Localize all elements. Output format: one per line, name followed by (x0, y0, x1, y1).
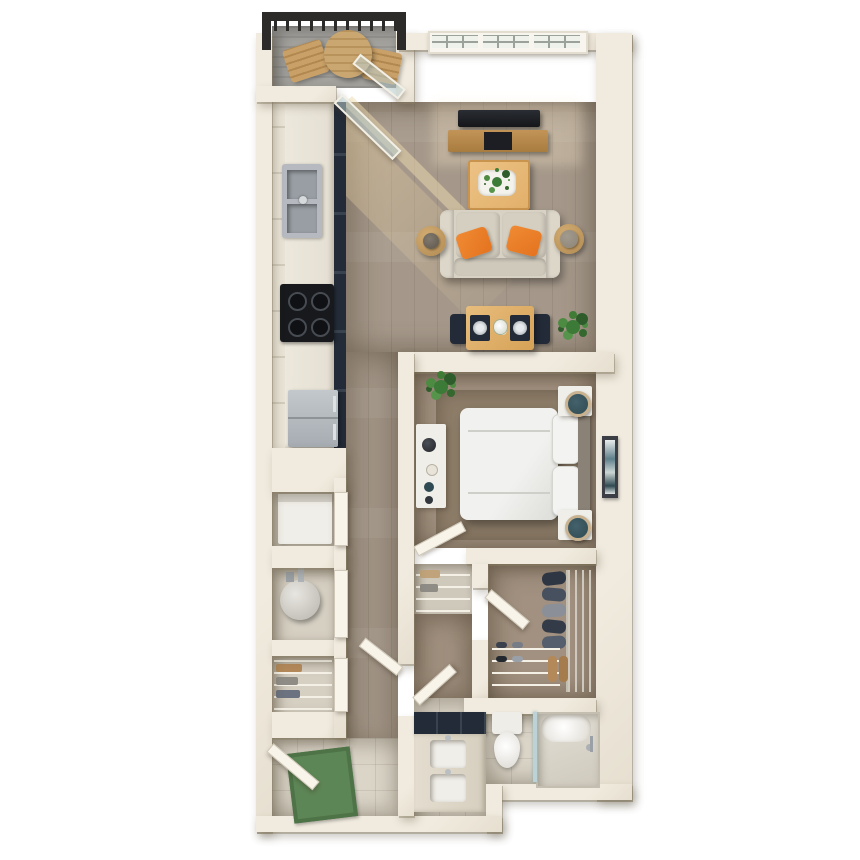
plate (473, 321, 487, 335)
plate (513, 321, 527, 335)
utility-closet-door (334, 570, 348, 638)
nightstand-south-lamp (565, 515, 591, 541)
water-heater-pipe (298, 568, 304, 582)
wall-corridor-right-upper (472, 564, 488, 588)
dining-chair-right (532, 314, 550, 344)
refrigerator-handle (333, 396, 336, 412)
hanging-clothes (541, 619, 566, 634)
coat-closet-item (276, 664, 302, 672)
vanity-faucet (445, 735, 451, 741)
hanging-clothes (541, 603, 566, 618)
folded-linens (420, 570, 440, 578)
bed-pillow (552, 414, 580, 464)
refrigerator-handle (333, 424, 336, 440)
floor-plan (0, 0, 860, 860)
bed-pillow (552, 466, 580, 516)
closet-corridor-floor (414, 614, 472, 698)
sink-faucet (299, 196, 307, 204)
laundry-closet-door (334, 492, 348, 546)
window-pane (534, 35, 580, 48)
bed-headboard (578, 410, 590, 518)
side-table-right-lamp (560, 230, 578, 248)
window-pane (432, 35, 478, 48)
coat-closet-item (276, 677, 298, 685)
balcony-railing-right (397, 12, 406, 50)
vanity-cabinet-faces (414, 712, 486, 734)
coffee-table-plant (492, 177, 502, 187)
wall-corridor-right-lower (472, 640, 488, 698)
vanity-sink (430, 774, 466, 802)
hallway-floor (346, 352, 398, 748)
bedroom-potted-plant (434, 380, 448, 394)
shower-bar (590, 736, 593, 752)
dresser-decor-dish (426, 464, 438, 476)
shower-glass-panel (533, 712, 537, 782)
media-console-center (484, 132, 512, 150)
burner (288, 318, 307, 337)
bed-duvet (460, 408, 558, 520)
bed-duvet-fold (468, 492, 550, 494)
water-heater-pipe (286, 572, 294, 582)
wall-hall-upper (398, 352, 414, 664)
shoe-pair (512, 642, 523, 648)
wall-right (596, 33, 632, 800)
shoe-pair (496, 656, 507, 662)
shower-bench (541, 715, 591, 742)
vanity-faucet (445, 769, 451, 775)
water-heater (280, 580, 320, 620)
wall-bedroom-bottom (466, 548, 596, 564)
dresser-decor-sphere (422, 438, 436, 452)
toilet-tank (492, 712, 522, 734)
vanity-sink (430, 740, 466, 768)
wall-left (256, 33, 272, 832)
coat-closet-door (334, 658, 348, 712)
hanging-clothes (541, 587, 566, 602)
sofa-back-cushion (454, 258, 546, 276)
bed-duvet-fold (468, 430, 550, 432)
kitchen-upper-cabinets (272, 102, 285, 448)
refrigerator-door-split (288, 417, 338, 419)
sink-basin (287, 170, 317, 199)
coat-closet-item (276, 690, 300, 698)
dining-potted-plant (566, 320, 580, 334)
boot (559, 656, 568, 682)
entry-doormat (286, 746, 358, 823)
washer-control-panel (278, 494, 332, 502)
burner (311, 292, 330, 311)
wall-hall-lower (398, 716, 414, 816)
wall-bedroom-top (398, 352, 614, 372)
burner (311, 318, 330, 337)
window-pane (483, 35, 529, 48)
shoe-pair (512, 656, 523, 662)
closet-wire-shelving (566, 570, 594, 692)
dresser-decor-jar (424, 482, 434, 492)
side-table-left-lamp (423, 233, 439, 249)
sink-basin (287, 204, 317, 233)
flower-centerpiece (494, 320, 507, 334)
balcony-railing-slats (262, 20, 406, 31)
tv (458, 110, 540, 127)
dresser-decor-jar-small (425, 496, 433, 504)
wall-top-left (256, 86, 336, 102)
balcony-railing-left (262, 12, 271, 50)
burner (288, 292, 307, 311)
folded-linens (420, 584, 438, 592)
shoe-pair (496, 642, 507, 648)
wall-art-print (605, 440, 615, 494)
nightstand-north-lamp (565, 391, 591, 417)
boot (548, 656, 557, 682)
